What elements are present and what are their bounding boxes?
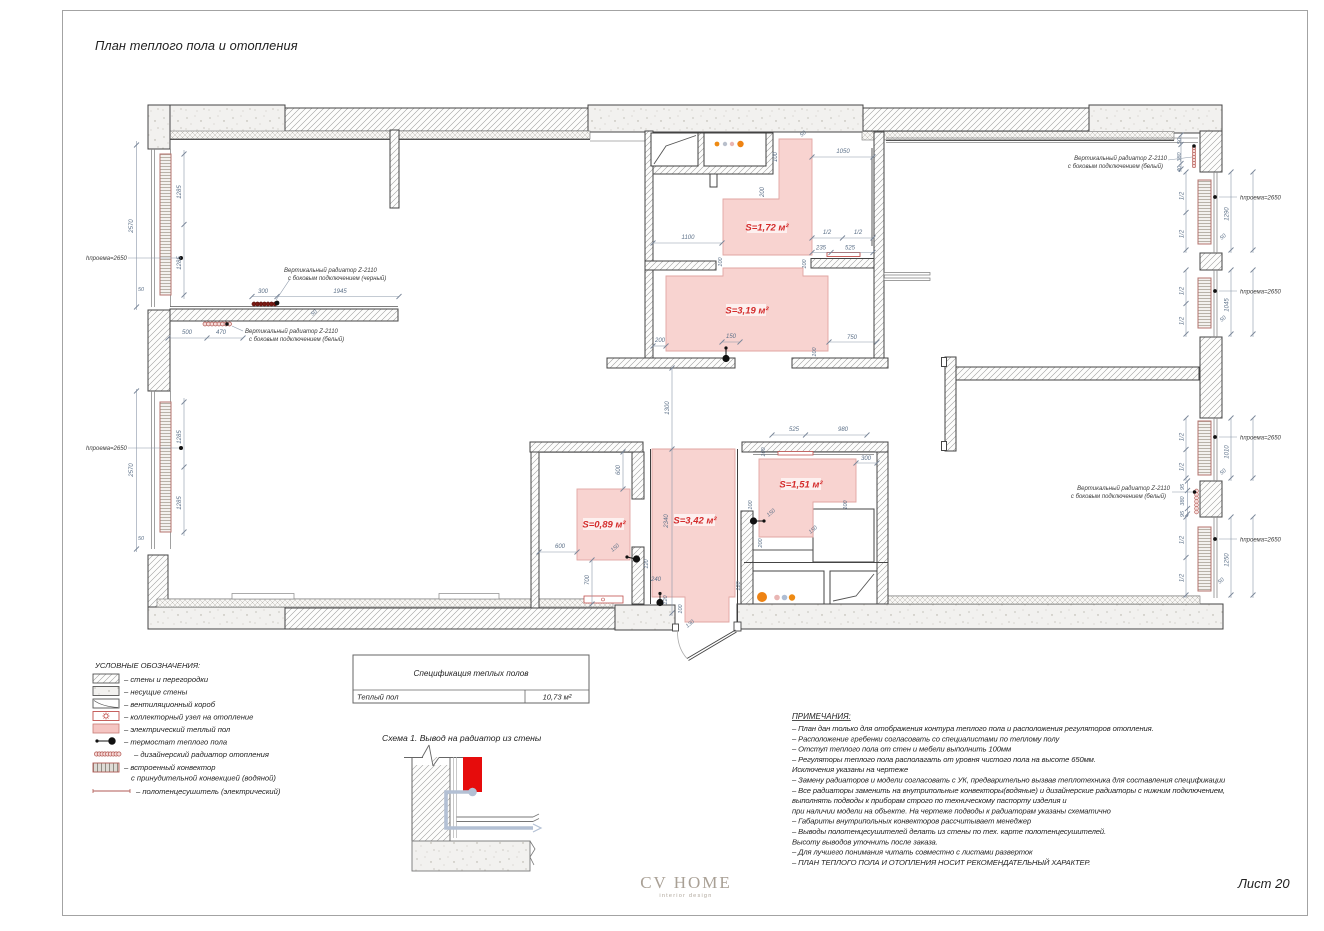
svg-text:Исключения указаны на чертеже: Исключения указаны на чертеже	[792, 765, 908, 774]
svg-text:1010: 1010	[1225, 445, 1231, 459]
svg-text:с боковым подключением (черный: с боковым подключением (черный)	[288, 275, 386, 282]
svg-text:План теплого пола и отопления: План теплого пола и отопления	[95, 38, 298, 53]
svg-text:– встроенный конвектор: – встроенный конвектор	[123, 763, 215, 772]
svg-text:hпроема=2650: hпроема=2650	[1240, 538, 1282, 544]
svg-text:100: 100	[802, 258, 808, 268]
svg-text:700: 700	[585, 574, 591, 585]
svg-text:УСЛОВНЫЕ ОБОЗНАЧЕНИЯ:: УСЛОВНЫЕ ОБОЗНАЧЕНИЯ:	[94, 661, 200, 670]
svg-text:100: 100	[678, 603, 684, 613]
svg-text:1/2: 1/2	[1180, 535, 1186, 544]
svg-text:50: 50	[138, 287, 145, 293]
svg-text:при наличии модели на объекте.: при наличии модели на объекте. На чертеж…	[792, 806, 1111, 815]
svg-text:1/2: 1/2	[1180, 432, 1186, 441]
svg-text:с принудительной конвекцией (в: с принудительной конвекцией (водяной)	[131, 774, 276, 783]
svg-text:200: 200	[654, 338, 666, 344]
svg-text:1/2: 1/2	[1180, 191, 1186, 200]
svg-text:120: 120	[736, 580, 742, 590]
svg-text:1285: 1285	[177, 185, 183, 199]
svg-text:235: 235	[815, 246, 827, 252]
svg-text:1945: 1945	[333, 289, 347, 295]
svg-text:1290: 1290	[1225, 207, 1231, 221]
svg-text:1050: 1050	[836, 149, 850, 155]
svg-text:980: 980	[838, 427, 849, 433]
svg-text:120: 120	[663, 594, 669, 604]
svg-text:100: 100	[718, 256, 724, 266]
svg-text:– Габариты внутрипольных конве: – Габариты внутрипольных конвекторов рас…	[791, 817, 1031, 826]
svg-text:95: 95	[1180, 483, 1186, 490]
svg-text:– Все радиаторы заменить на вн: – Все радиаторы заменить на внутрипольны…	[791, 786, 1225, 795]
svg-text:Вертикальный радиатор Z-2110: Вертикальный радиатор Z-2110	[245, 328, 339, 335]
svg-text:– Для лучшего понимания читать: – Для лучшего понимания читать совместно…	[791, 848, 1033, 857]
svg-text:1250: 1250	[1225, 553, 1231, 567]
svg-text:– Отступ теплого пола от стен: – Отступ теплого пола от стен и мебели в…	[791, 745, 1012, 754]
svg-text:S=3,42 м²: S=3,42 м²	[673, 516, 717, 527]
svg-text:– Выводы полотенцесушителей де: – Выводы полотенцесушителей делать из ст…	[791, 827, 1106, 836]
svg-text:interior design: interior design	[659, 893, 712, 899]
svg-text:1/2: 1/2	[1180, 462, 1186, 471]
svg-text:500: 500	[182, 330, 193, 336]
svg-text:Спецификация теплых полов: Спецификация теплых полов	[413, 669, 529, 678]
svg-text:1100: 1100	[682, 235, 696, 241]
svg-text:600: 600	[616, 464, 622, 475]
svg-text:240: 240	[650, 577, 662, 583]
svg-text:с боковым подключением (белый): с боковым подключением (белый)	[1071, 493, 1166, 500]
svg-text:– Замену радиаторов и модели с: – Замену радиаторов и модели согласовать…	[791, 776, 1226, 785]
svg-text:200: 200	[760, 186, 766, 198]
svg-text:470: 470	[216, 330, 227, 336]
svg-text:380: 380	[1177, 151, 1183, 161]
svg-text:Схема 1. Вывод на радиатор из: Схема 1. Вывод на радиатор из стены	[382, 733, 542, 743]
svg-text:1/2: 1/2	[1180, 573, 1186, 582]
svg-text:100: 100	[773, 151, 779, 162]
svg-text:40: 40	[1177, 165, 1183, 172]
svg-text:100: 100	[761, 446, 767, 456]
svg-text:– стены и перегородки: – стены и перегородки	[123, 675, 209, 684]
svg-text:300: 300	[258, 289, 269, 295]
svg-text:1/2: 1/2	[1180, 229, 1186, 238]
svg-text:– вентиляционный короб: – вентиляционный короб	[123, 700, 216, 709]
svg-text:1/2: 1/2	[823, 230, 832, 236]
svg-text:– полотенцесушитель (электриче: – полотенцесушитель (электрический)	[135, 787, 281, 796]
svg-text:1/2: 1/2	[854, 230, 863, 236]
svg-text:с боковым подключением (белый): с боковым подключением (белый)	[249, 336, 344, 343]
svg-text:1285: 1285	[177, 256, 183, 270]
svg-text:2570: 2570	[129, 219, 135, 234]
svg-text:– Расположение гребенки соглас: – Расположение гребенки согласовать со с…	[791, 734, 1060, 743]
svg-text:hпроема=2650: hпроема=2650	[1240, 436, 1282, 442]
svg-text:1/2: 1/2	[1180, 316, 1186, 325]
svg-text:Высоту выводов уточнить после: Высоту выводов уточнить после заказа.	[792, 837, 938, 846]
svg-text:300: 300	[861, 456, 872, 462]
svg-text:1300: 1300	[665, 401, 671, 415]
svg-text:– несущие стены: – несущие стены	[123, 688, 188, 697]
svg-text:hпроема=2650: hпроема=2650	[1240, 290, 1282, 296]
svg-text:– коллекторный узел на отоплен: – коллекторный узел на отопление	[123, 713, 253, 722]
svg-text:380: 380	[1180, 495, 1186, 505]
svg-text:Вертикальный радиатор Z-2110: Вертикальный радиатор Z-2110	[1074, 155, 1168, 162]
svg-text:– дизайнерский радиатор отопле: – дизайнерский радиатор отопления	[133, 750, 269, 759]
svg-text:ПРИМЕЧАНИЯ:: ПРИМЕЧАНИЯ:	[792, 712, 851, 721]
svg-text:150: 150	[726, 334, 737, 340]
svg-text:с боковым подключением (белый): с боковым подключением (белый)	[1068, 163, 1163, 170]
svg-text:S=1,51 м²: S=1,51 м²	[779, 480, 823, 491]
svg-text:– электрический теплый пол: – электрический теплый пол	[123, 725, 231, 734]
svg-text:S=1,72 м²: S=1,72 м²	[745, 223, 789, 234]
svg-text:600: 600	[555, 544, 566, 550]
svg-text:выполнять подводы к приборам с: выполнять подводы к приборам строго по т…	[792, 796, 1067, 805]
svg-text:100: 100	[748, 499, 754, 509]
svg-text:– Регуляторы теплого пола расп: – Регуляторы теплого пола располагать от…	[791, 755, 1096, 764]
svg-text:– термостат теплого пола: – термостат теплого пола	[123, 738, 227, 747]
svg-text:Вертикальный радиатор Z-2110: Вертикальный радиатор Z-2110	[284, 267, 378, 274]
svg-text:750: 750	[847, 335, 858, 341]
svg-text:50: 50	[1177, 137, 1183, 144]
svg-text:2340: 2340	[664, 514, 670, 529]
svg-text:100: 100	[812, 346, 818, 356]
svg-text:– План дан только для отображе: – План дан только для отображения контур…	[791, 724, 1154, 733]
svg-text:hпроема=2650: hпроема=2650	[1240, 196, 1282, 202]
svg-text:1045: 1045	[1225, 298, 1231, 312]
svg-text:2570: 2570	[129, 463, 135, 478]
svg-text:100: 100	[843, 499, 849, 509]
svg-text:50: 50	[138, 536, 145, 542]
svg-text:Лист 20: Лист 20	[1237, 876, 1290, 891]
svg-text:hпроема=2650: hпроема=2650	[86, 446, 128, 452]
svg-text:200: 200	[758, 537, 764, 548]
svg-text:10,73 м²: 10,73 м²	[543, 693, 572, 702]
svg-text:1/2: 1/2	[1180, 286, 1186, 295]
svg-text:1285: 1285	[177, 430, 183, 444]
svg-text:– ПЛАН ТЕПЛОГО ПОЛА И ОТОПЛЕНИ: – ПЛАН ТЕПЛОГО ПОЛА И ОТОПЛЕНИЯ НОСИТ РЕ…	[791, 858, 1091, 867]
svg-text:CV HOME: CV HOME	[640, 873, 732, 892]
svg-text:S=3,19 м²: S=3,19 м²	[725, 306, 769, 317]
svg-text:hпроема=2650: hпроема=2650	[86, 256, 128, 262]
svg-text:1285: 1285	[177, 496, 183, 510]
svg-text:Вертикальный радиатор Z-2110: Вертикальный радиатор Z-2110	[1077, 485, 1171, 492]
svg-text:525: 525	[789, 427, 800, 433]
svg-text:95: 95	[1180, 510, 1186, 517]
svg-text:Теплый пол: Теплый пол	[357, 693, 399, 702]
svg-text:120: 120	[644, 558, 650, 568]
svg-text:525: 525	[845, 246, 856, 252]
svg-text:S=0,89 м²: S=0,89 м²	[582, 520, 626, 531]
